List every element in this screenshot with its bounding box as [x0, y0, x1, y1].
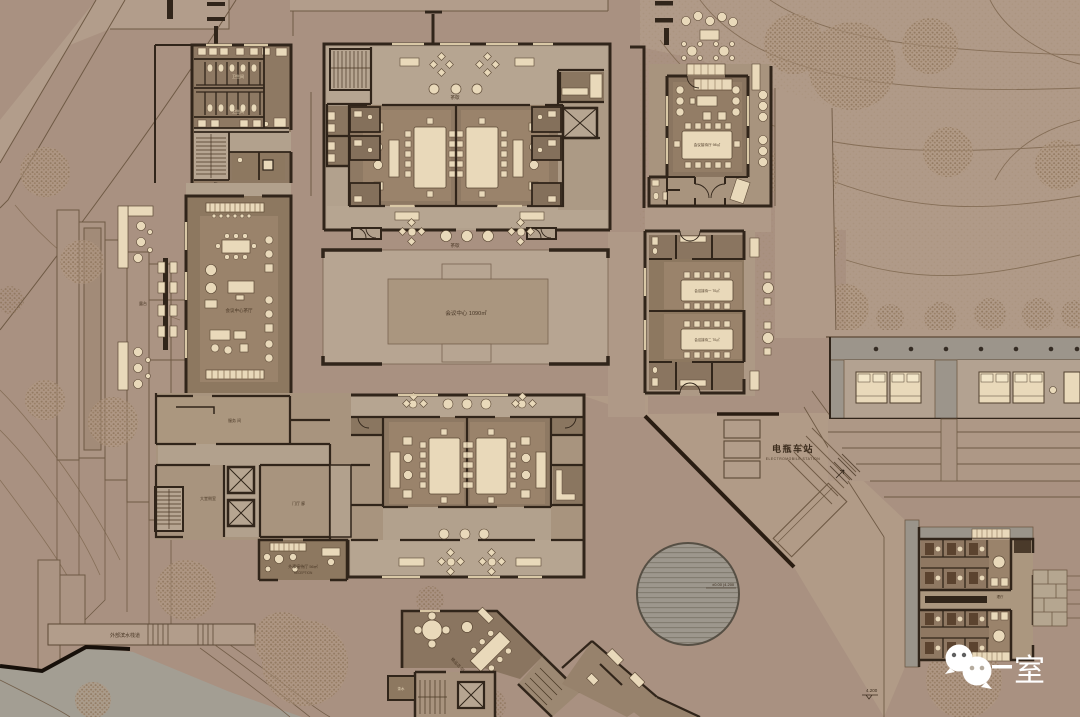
svg-text:茶水: 茶水 [398, 686, 406, 691]
svg-text:电瓶车站: 电瓶车站 [772, 443, 814, 454]
svg-text:茶歇: 茶歇 [451, 94, 460, 101]
svg-text:服务 间: 服务 间 [228, 417, 241, 423]
svg-text:大堂侧室: 大堂侧室 [200, 495, 216, 501]
svg-text:ELECTROMOBILE STATION: ELECTROMOBILE STATION [766, 457, 821, 461]
svg-text:RECEPTION: RECEPTION [294, 571, 313, 575]
svg-text:外部滨水栈道: 外部滨水栈道 [110, 632, 140, 639]
svg-text:茶歇: 茶歇 [451, 242, 460, 249]
svg-text:会议接待厅 98㎡: 会议接待厅 98㎡ [694, 142, 721, 147]
svg-text:会议中心茶厅: 会议中心茶厅 [226, 307, 253, 314]
svg-text:卫生间: 卫生间 [232, 73, 244, 79]
svg-text:门厅 廊: 门厅 廊 [292, 500, 305, 506]
svg-text:理疗: 理疗 [997, 594, 1004, 599]
svg-text:外事接待厅 56㎡: 外事接待厅 56㎡ [288, 563, 318, 569]
svg-text:4.200: 4.200 [866, 688, 878, 693]
svg-text:±0.00 |4.200: ±0.00 |4.200 [712, 582, 735, 587]
svg-text:会议接待一 70㎡: 会议接待一 70㎡ [694, 288, 720, 293]
svg-text:室: 室 [1014, 653, 1045, 688]
svg-text:露台: 露台 [139, 300, 147, 306]
svg-text:会议中心 1090㎡: 会议中心 1090㎡ [445, 309, 487, 317]
svg-text:卫生间: 卫生间 [232, 108, 244, 114]
svg-text:会议接待二 70㎡: 会议接待二 70㎡ [694, 337, 720, 342]
